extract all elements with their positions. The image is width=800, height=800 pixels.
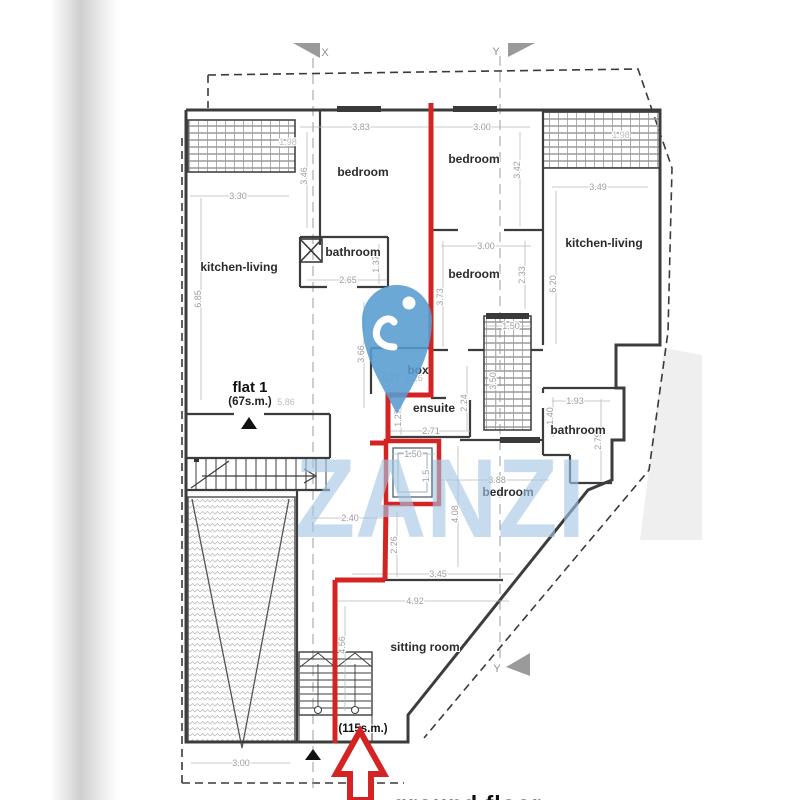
dimension-label: 3.73 (435, 288, 445, 306)
dimension-label: 3.00 (232, 758, 250, 768)
dimension-label: 3.46 (299, 167, 309, 185)
section-marker-label: X (321, 47, 329, 59)
dimension-label: 2.71 (422, 426, 440, 436)
dimension-label: 6.20 (548, 275, 558, 293)
dimension-label: 1.93 (566, 396, 584, 406)
room-label: sitting room (390, 640, 459, 654)
dimension-label: 3.00 (473, 122, 491, 132)
scan-shadow-left (50, 0, 118, 800)
garage-ramp (188, 497, 295, 742)
room-label: bedroom (337, 165, 388, 179)
dimension-label: 3.30 (229, 191, 247, 201)
dimension-label: 3.49 (589, 182, 607, 192)
dimension-label: 1.98 (279, 137, 297, 147)
watermark-text: ZANZI (295, 436, 585, 561)
shaft-top-right (543, 112, 660, 168)
room-label: bathroom (325, 245, 380, 259)
room-label: bedroom (448, 152, 499, 166)
dimension-label: 3.66 (356, 345, 366, 363)
dimension-label: 4.56 (337, 636, 347, 654)
dimension-label: 2.65 (339, 275, 357, 285)
room-label: ensuite (413, 401, 455, 415)
dimension-label: 5.86 (277, 397, 295, 407)
floor-plan-svg: 3.833.001.981.983.463.423.493.303.002.33… (0, 0, 800, 800)
dimension-label: 3.83 (352, 122, 370, 132)
section-marker-label: Y (492, 46, 500, 58)
dimension-label: 3.00 (477, 241, 495, 251)
dimension-label: 6.85 (193, 290, 203, 308)
area-label: (67s.m.) (228, 396, 272, 408)
room-label: kitchen-living (565, 236, 642, 250)
dimension-label: 2.33 (517, 266, 527, 284)
dimension-label: 3.42 (512, 161, 522, 179)
dimension-label: 4.92 (406, 596, 424, 606)
dimension-label: 1.50 (502, 321, 520, 331)
dimension-label: 1.98 (612, 130, 630, 140)
floor-plan-page: 3.833.001.981.983.463.423.493.303.002.33… (0, 0, 800, 800)
area-label: flat 1 (232, 379, 267, 396)
dimension-label: 3.45 (429, 569, 447, 579)
cropped-caption: ground floor (393, 791, 693, 800)
pin-dot (403, 297, 416, 310)
section-marker-label: Y (493, 663, 501, 675)
dimension-label: 3.50 (488, 372, 498, 390)
room-label: bedroom (448, 267, 499, 281)
room-label: bathroom (550, 423, 605, 437)
dimension-label: 2.24 (459, 394, 469, 412)
room-label: kitchen-living (200, 260, 277, 274)
